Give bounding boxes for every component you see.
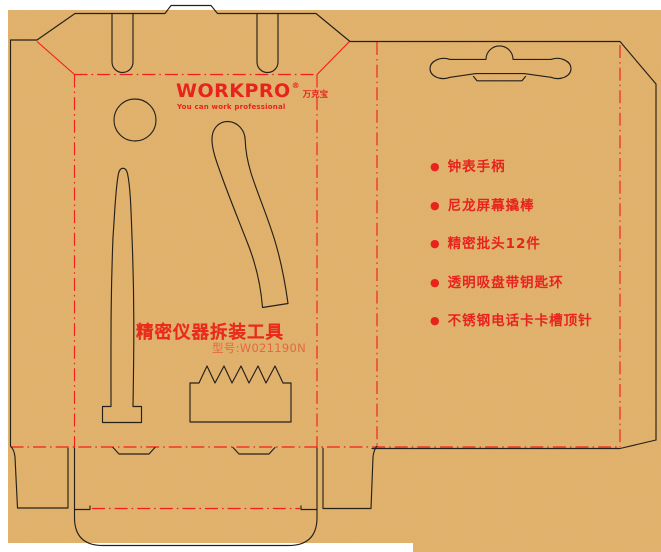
contents-list: ●钟表手柄 ●尼龙屏幕撬棒 ●精密批头12件 ●透明吸盘带钥匙环 ●不锈钢电话卡…	[430, 160, 593, 353]
bullet-icon: ●	[430, 199, 441, 213]
list-item-label: 精密批头12件	[448, 236, 541, 252]
brand-name-chinese: 万克宝	[303, 90, 329, 100]
brand-logo-block: WORKPRO®万克宝 You can work professional	[176, 82, 328, 111]
list-item: ●钟表手柄	[430, 160, 593, 175]
list-item-label: 尼龙屏幕撬棒	[448, 198, 535, 214]
list-item: ●精密批头12件	[430, 237, 593, 252]
model-number: 型号:W021190N	[212, 340, 306, 356]
list-item-label: 不锈钢电话卡卡槽顶针	[448, 313, 593, 329]
list-item: ●不锈钢电话卡卡槽顶针	[430, 314, 593, 329]
list-item-label: 钟表手柄	[448, 159, 506, 175]
list-item: ●尼龙屏幕撬棒	[430, 199, 593, 214]
bullet-icon: ●	[430, 160, 441, 174]
bullet-icon: ●	[430, 276, 441, 290]
registered-mark-icon: ®	[292, 81, 300, 90]
brand-logo: WORKPRO	[176, 80, 291, 102]
bullet-icon: ●	[430, 314, 441, 328]
brand-tagline: You can work professional	[177, 104, 328, 111]
list-item: ●透明吸盘带钥匙环	[430, 276, 593, 291]
packaging-dieline-photo: WORKPRO®万克宝 You can work professional 精密…	[0, 0, 661, 552]
list-item-label: 透明吸盘带钥匙环	[448, 275, 564, 291]
bullet-icon: ●	[430, 237, 441, 251]
